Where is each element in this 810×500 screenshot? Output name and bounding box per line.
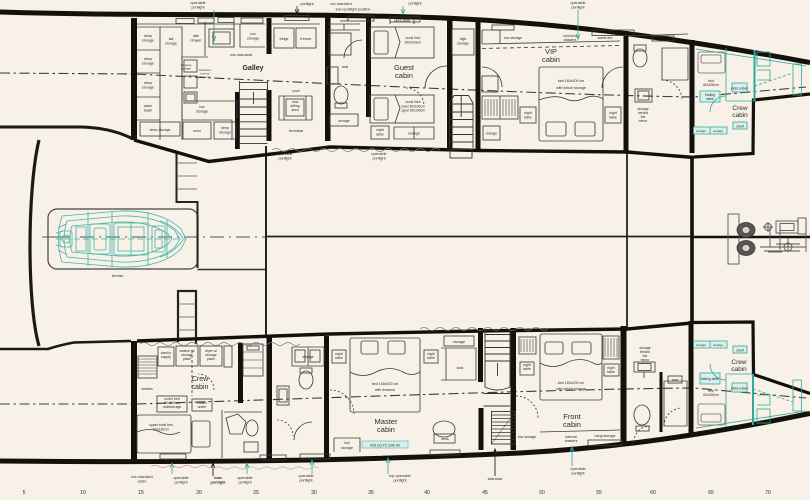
svg-text:80x190cm: 80x190cm — [153, 428, 169, 432]
svg-text:cabin: cabin — [192, 384, 209, 391]
svg-text:storage: storage — [341, 446, 353, 450]
svg-text:openable: openable — [173, 476, 188, 480]
svg-text:Crew: Crew — [732, 105, 747, 112]
svg-text:oven: oven — [193, 129, 201, 133]
svg-text:with inbuilt storage: with inbuilt storage — [556, 387, 586, 391]
svg-text:wash: wash — [144, 104, 152, 108]
svg-text:30: 30 — [311, 490, 317, 496]
svg-text:drawer: drawer — [191, 39, 203, 43]
svg-text:portlight: portlight — [300, 2, 313, 6]
svg-text:drawers: drawers — [565, 439, 578, 443]
svg-text:dish: dish — [193, 34, 200, 38]
svg-text:tender: tender — [112, 273, 124, 278]
svg-text:extra locker: extra locker — [731, 87, 749, 91]
svg-text:non standard: non standard — [330, 2, 352, 6]
svg-text:storage: storage — [181, 67, 191, 71]
svg-text:openable: openable — [237, 476, 252, 480]
svg-text:place: place — [183, 357, 191, 361]
svg-text:cabin: cabin — [395, 71, 413, 80]
svg-text:portlight: portlight — [571, 472, 584, 476]
svg-text:table: table — [523, 367, 531, 371]
svg-text:desk: desk — [441, 437, 449, 441]
svg-text:bed 160x200 cm: bed 160x200 cm — [372, 382, 399, 386]
svg-text:non standard: non standard — [230, 53, 252, 57]
svg-text:deep: deep — [144, 81, 152, 85]
svg-text:45: 45 — [482, 490, 488, 496]
svg-text:upper bunk bed: upper bunk bed — [149, 423, 173, 427]
svg-text:table: table — [609, 116, 617, 120]
svg-text:Crew: Crew — [731, 359, 746, 366]
svg-text:70: 70 — [765, 490, 771, 496]
svg-text:seat: seat — [342, 65, 348, 69]
svg-text:portlight: portlight — [211, 481, 227, 485]
svg-text:portlight: portlight — [191, 6, 204, 10]
svg-text:table: table — [524, 116, 532, 120]
svg-text:portlight: portlight — [238, 481, 251, 485]
svg-text:table: table — [706, 97, 713, 101]
svg-text:night: night — [376, 128, 384, 132]
svg-text:openable: openable — [570, 1, 585, 5]
svg-text:35: 35 — [368, 490, 374, 496]
svg-text:portlight: portlight — [372, 157, 385, 161]
svg-text:deep: deep — [144, 57, 152, 61]
svg-text:20: 20 — [196, 490, 202, 496]
svg-text:tall: tall — [169, 37, 174, 41]
svg-text:storage: storage — [165, 42, 177, 46]
svg-text:openable: openable — [371, 152, 386, 156]
svg-text:under: under — [198, 405, 208, 409]
svg-text:50: 50 — [539, 490, 545, 496]
svg-text:storage: storage — [142, 62, 154, 66]
svg-text:portlight: portlight — [174, 481, 187, 485]
svg-text:table: table — [376, 133, 384, 137]
svg-text:seat: seat — [672, 378, 678, 382]
svg-text:#16 (a) TC 2xlk 90: #16 (a) TC 2xlk 90 — [370, 444, 400, 448]
svg-text:Galley: Galley — [242, 65, 263, 72]
svg-text:table: table — [427, 356, 435, 360]
svg-text:10: 10 — [80, 490, 86, 496]
svg-text:mirror: mirror — [639, 119, 649, 123]
svg-text:upper 80x190cm: upper 80x190cm — [401, 109, 425, 113]
svg-text:table: table — [335, 356, 343, 360]
svg-text:mirror: mirror — [641, 358, 651, 362]
svg-text:openable: openable — [190, 1, 205, 5]
svg-text:high: high — [460, 37, 467, 41]
svg-text:sofa: sofa — [457, 366, 464, 370]
svg-text:deep: deep — [144, 34, 152, 38]
svg-text:sub+portlight position: sub+portlight position — [336, 8, 371, 12]
svg-text:cabin: cabin — [563, 420, 581, 429]
svg-text:low: low — [250, 32, 256, 36]
svg-text:with drawers: with drawers — [375, 388, 395, 392]
svg-text:Crew: Crew — [192, 376, 209, 383]
svg-text:cabin: cabin — [377, 425, 395, 434]
svg-text:25: 25 — [253, 490, 259, 496]
svg-text:top openable: top openable — [389, 474, 410, 478]
svg-text:night: night — [609, 111, 617, 115]
svg-text:storage: storage — [338, 119, 349, 123]
svg-text:cabin: cabin — [731, 366, 747, 373]
svg-text:portlight: portlight — [299, 479, 312, 483]
svg-text:low: low — [199, 105, 205, 109]
svg-text:shelf: shelf — [340, 19, 347, 23]
svg-text:technical: technical — [289, 129, 303, 133]
svg-text:storage: storage — [696, 343, 706, 347]
svg-text:wardrobe: wardrobe — [598, 36, 613, 40]
svg-text:storage: storage — [142, 86, 154, 90]
svg-text:low storage: low storage — [504, 36, 522, 40]
svg-text:low storage: low storage — [518, 435, 536, 439]
svg-text:storage: storage — [713, 343, 723, 347]
svg-text:openable: openable — [298, 474, 313, 478]
svg-text:multistorage: multistorage — [163, 405, 182, 409]
svg-text:with inbuilt storage: with inbuilt storage — [556, 86, 586, 90]
svg-text:55: 55 — [596, 490, 602, 496]
svg-text:bed 160x200 cm: bed 160x200 cm — [558, 79, 585, 83]
svg-text:cabin: cabin — [732, 112, 748, 119]
svg-text:hang storage: hang storage — [595, 434, 616, 438]
svg-text:non standard: non standard — [131, 475, 153, 479]
svg-text:bed 160x200 cm: bed 160x200 cm — [558, 381, 585, 385]
svg-text:folding table: folding table — [701, 377, 719, 381]
svg-text:cabin: cabin — [138, 480, 147, 484]
svg-text:portlight: portlight — [393, 479, 406, 483]
svg-text:storage: storage — [486, 132, 497, 136]
svg-text:basin: basin — [144, 109, 153, 113]
svg-text:area: area — [291, 108, 298, 112]
svg-text:portlight: portlight — [571, 6, 584, 10]
svg-text:deep: deep — [221, 126, 229, 130]
svg-text:staircase: staircase — [488, 477, 503, 481]
svg-text:portlight: portlight — [278, 157, 291, 161]
svg-text:openable: openable — [277, 152, 292, 156]
svg-text:storage: storage — [696, 129, 706, 133]
svg-text:storage: storage — [247, 37, 259, 41]
svg-text:freezer: freezer — [300, 37, 312, 41]
svg-text:shelf: shelf — [736, 125, 743, 129]
svg-text:15: 15 — [138, 490, 144, 496]
svg-text:storage: storage — [196, 110, 208, 114]
svg-text:storage: storage — [142, 39, 154, 43]
svg-text:low: low — [344, 441, 350, 445]
svg-text:60: 60 — [650, 490, 656, 496]
svg-text:night: night — [524, 111, 532, 115]
svg-text:storage: storage — [219, 131, 231, 135]
svg-text:storage: storage — [302, 355, 313, 359]
svg-text:pouf: pouf — [293, 89, 300, 93]
svg-text:storage: storage — [457, 42, 469, 46]
svg-text:storage: storage — [408, 132, 420, 136]
svg-text:fridge: fridge — [280, 37, 289, 41]
svg-text:shelves: shelves — [141, 387, 153, 391]
svg-text:supply: supply — [161, 355, 171, 359]
svg-text:place: place — [207, 357, 215, 361]
svg-text:table: table — [607, 370, 615, 374]
svg-text:storage: storage — [453, 340, 465, 344]
svg-text:80x190cm: 80x190cm — [703, 83, 719, 87]
svg-text:cabin: cabin — [542, 55, 560, 64]
svg-text:openable: openable — [570, 467, 585, 471]
svg-text:65: 65 — [708, 490, 714, 496]
svg-text:shelf: shelf — [736, 349, 743, 353]
svg-text:bunk bed: bunk bed — [406, 36, 421, 40]
svg-text:80x190cm: 80x190cm — [703, 393, 719, 397]
svg-text:drawers: drawers — [200, 75, 211, 79]
svg-text:5: 5 — [23, 490, 26, 496]
svg-text:portlight: portlight — [408, 2, 421, 6]
svg-text:bow: bow — [214, 476, 222, 480]
svg-text:40: 40 — [424, 490, 430, 496]
svg-text:drawers: drawers — [564, 38, 577, 42]
svg-text:storage: storage — [713, 129, 723, 133]
svg-text:extra locker: extra locker — [731, 387, 749, 391]
svg-text:deep storage: deep storage — [150, 128, 171, 132]
svg-text:80x190cm: 80x190cm — [405, 41, 422, 45]
svg-text:bunk bed: bunk bed — [406, 100, 421, 104]
